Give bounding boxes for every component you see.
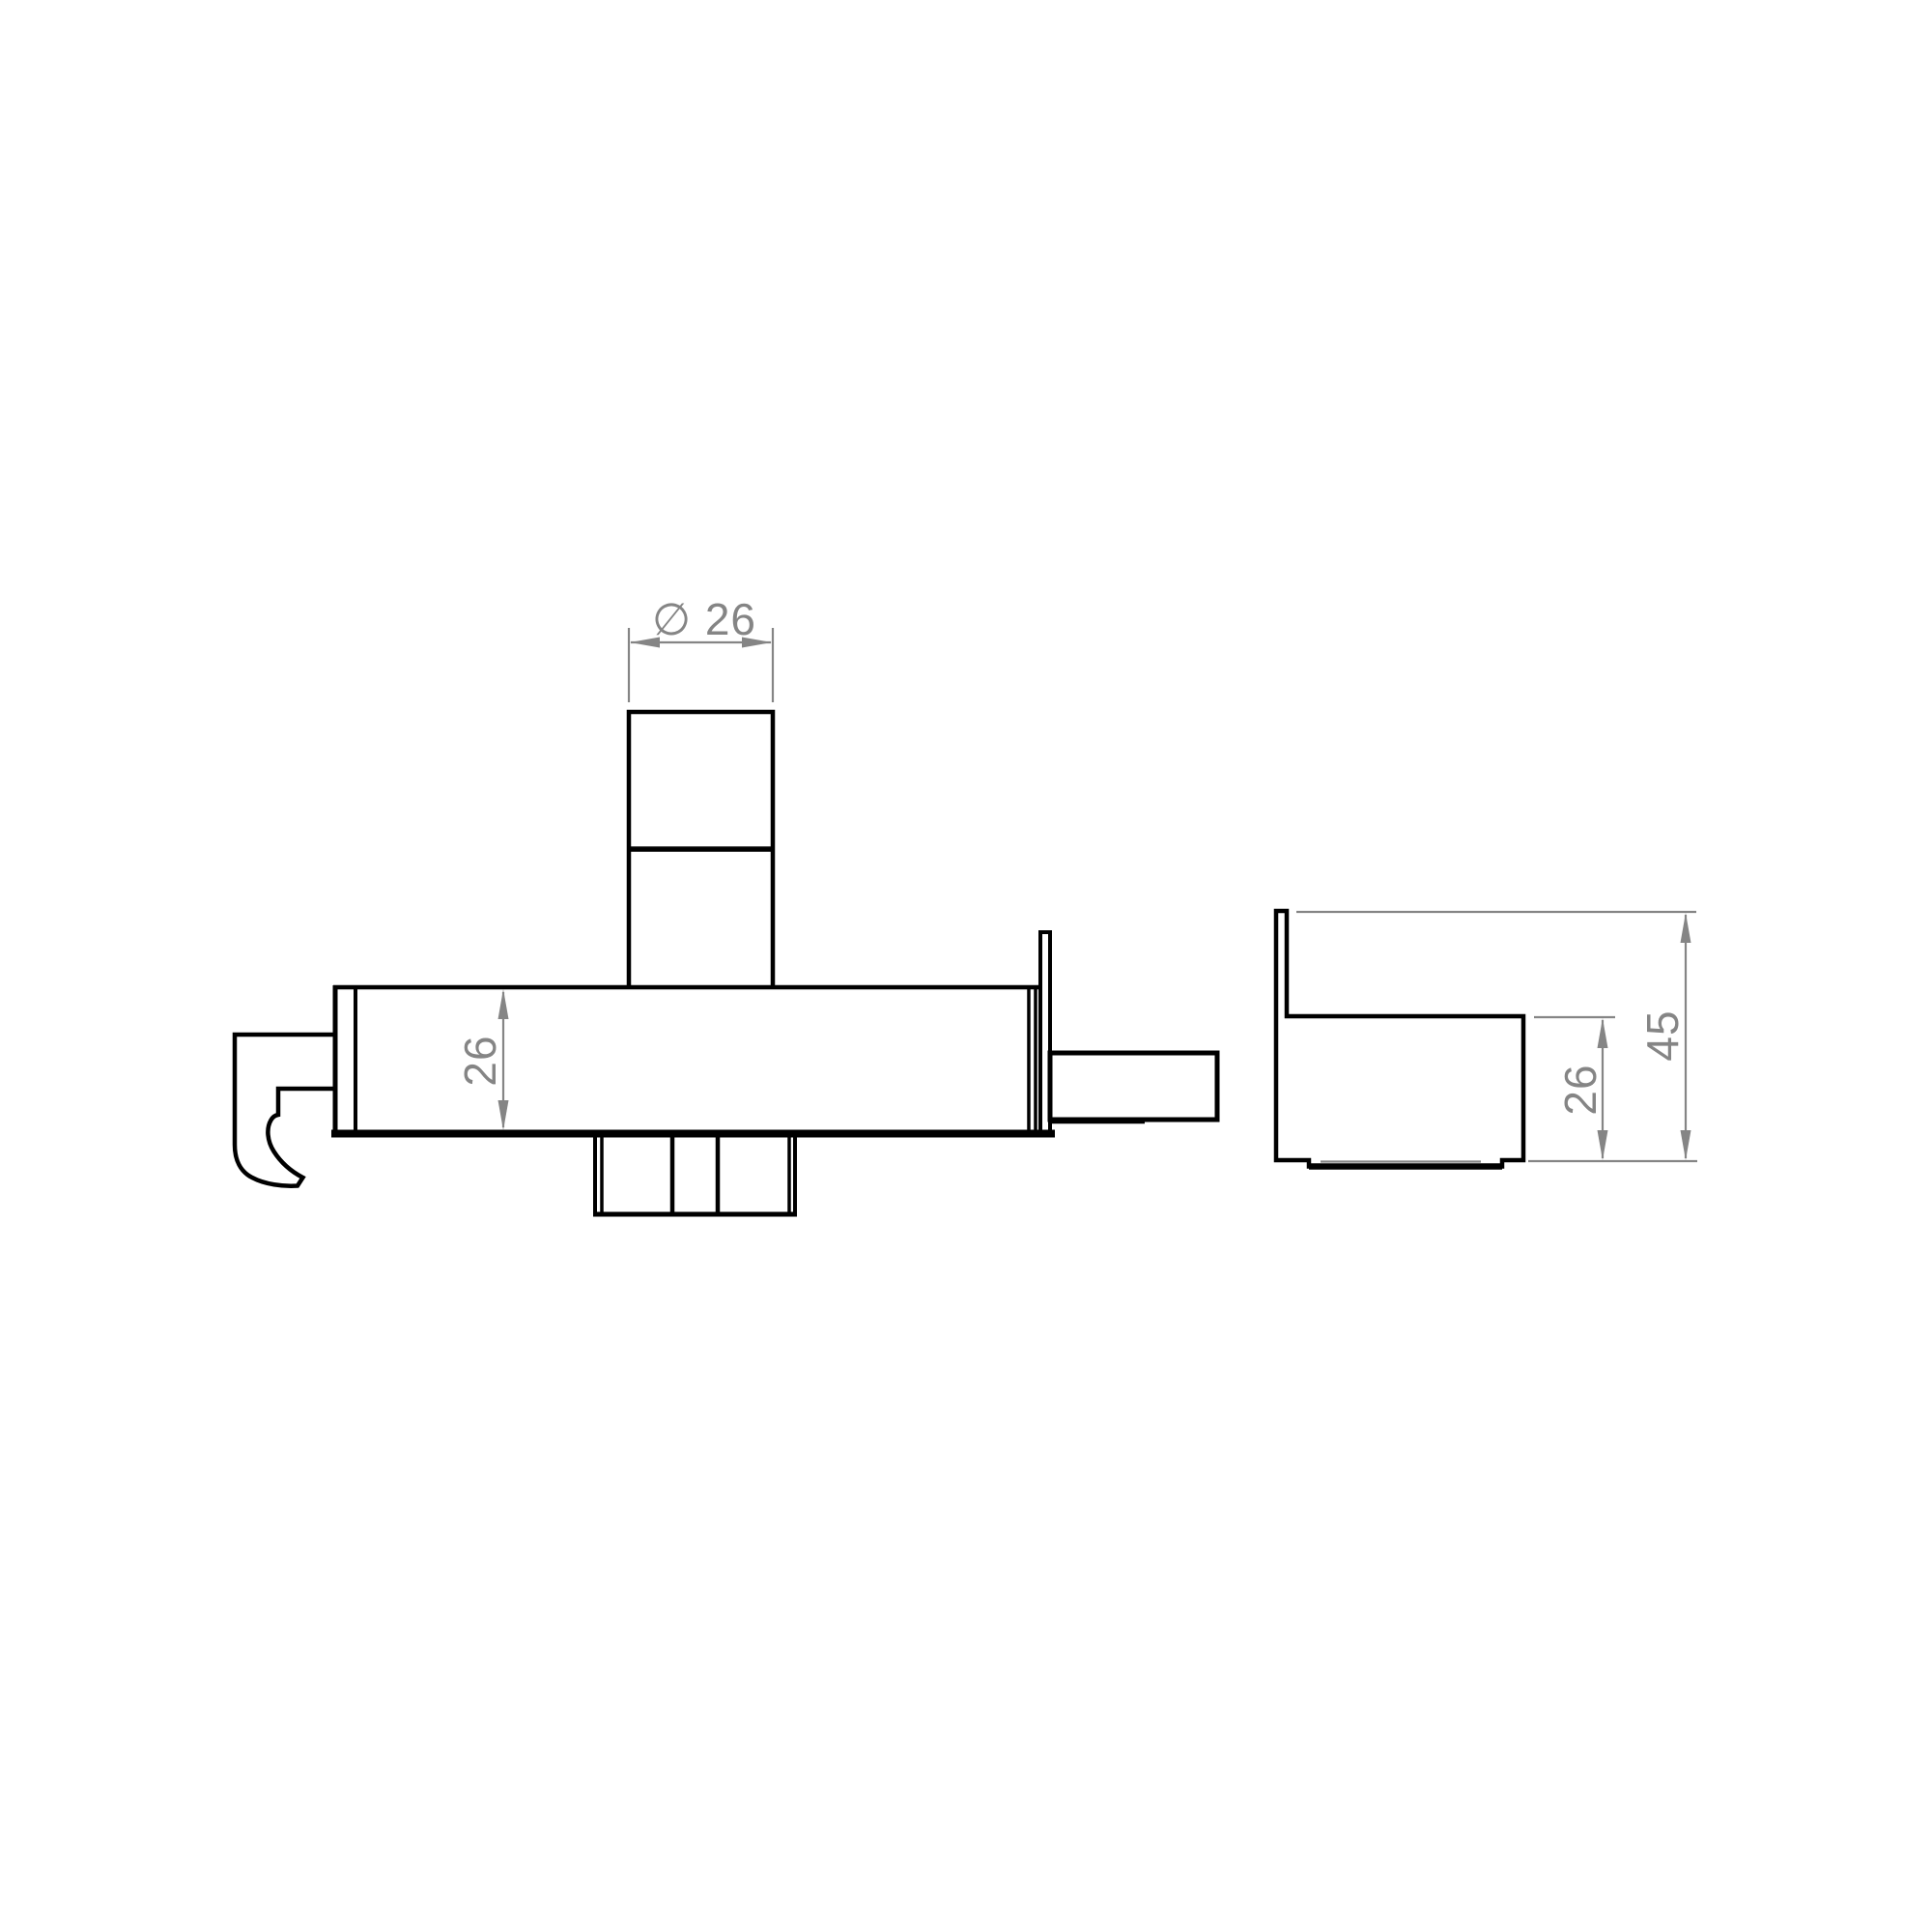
arrowhead-down: [498, 1100, 509, 1130]
lower-block: [593, 1132, 797, 1214]
arrowhead-up: [1681, 913, 1691, 943]
lock-body: [331, 985, 1055, 1134]
dimension-spindle-diameter: ∅ 26: [629, 594, 773, 702]
latch-bolt: [1050, 1053, 1217, 1122]
spindle-cylinder: [627, 712, 775, 987]
technical-drawing-canvas: ∅ 26 26 26 45: [0, 0, 1932, 1932]
arrowhead-down: [1681, 1130, 1691, 1160]
dimension-label-side-body-height: 26: [1555, 1064, 1605, 1115]
dimension-label-spindle-diameter: ∅ 26: [652, 594, 756, 644]
dimension-side-total-height: 45: [1296, 912, 1697, 1161]
dimension-front-body-height: 26: [455, 989, 509, 1130]
arrowhead-down: [1598, 1130, 1608, 1160]
dimensions: ∅ 26 26 26 45: [455, 594, 1697, 1161]
dimension-label-side-total-height: 45: [1637, 1009, 1688, 1061]
arrowhead-up: [1598, 1018, 1608, 1048]
side-view: [1276, 911, 1523, 1167]
side-view-outline: [1276, 911, 1523, 1167]
dimension-side-body-height: 26: [1534, 1017, 1615, 1160]
dimension-label-front-body-height: 26: [455, 1035, 505, 1086]
hook-claw: [235, 1035, 333, 1186]
front-view: [235, 712, 1217, 1214]
latch-bolt-outline: [1050, 1053, 1217, 1120]
arrowhead-up: [498, 989, 509, 1019]
